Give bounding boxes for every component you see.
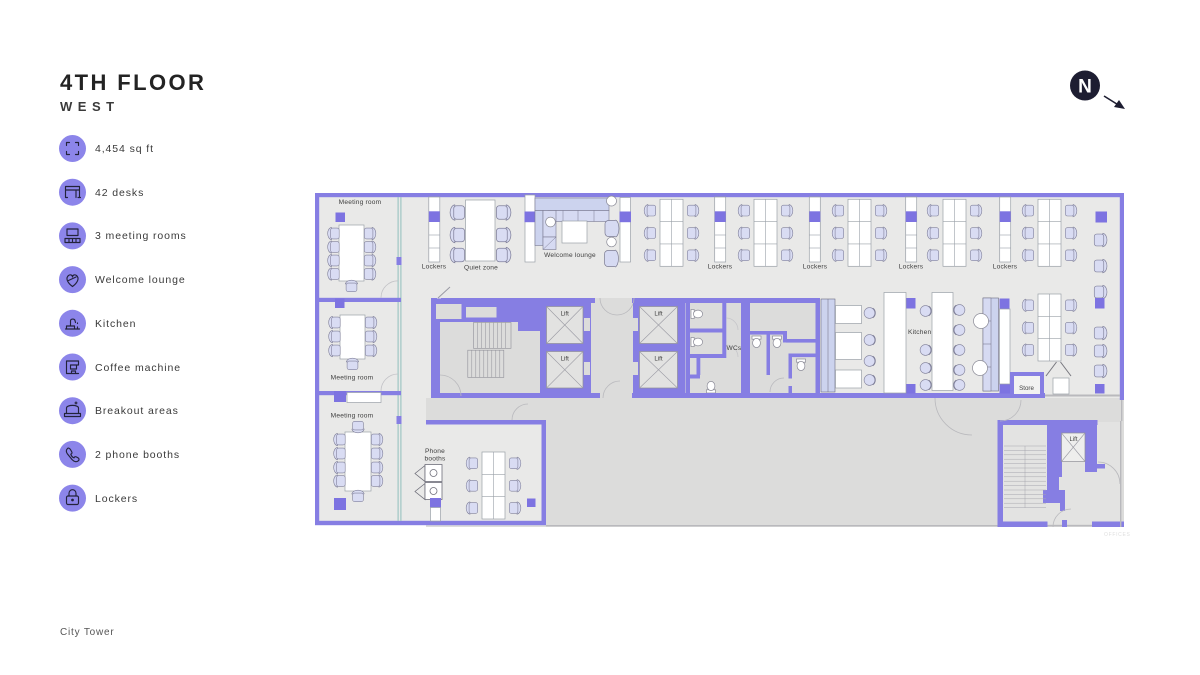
svg-text:Lockers: Lockers [422, 264, 447, 271]
svg-text:Lockers: Lockers [708, 264, 733, 271]
svg-text:Welcome lounge: Welcome lounge [544, 252, 596, 259]
svg-text:Lockers: Lockers [993, 264, 1018, 271]
svg-text:Quiet zone: Quiet zone [464, 265, 498, 272]
svg-text:Lift: Lift [561, 356, 570, 363]
svg-text:Store: Store [1019, 385, 1034, 392]
svg-text:Lift: Lift [1069, 437, 1077, 443]
svg-text:Lift: Lift [654, 356, 663, 363]
svg-text:Lockers: Lockers [803, 264, 828, 271]
svg-text:OFFICES: OFFICES [1104, 532, 1131, 538]
svg-text:Kitchen: Kitchen [908, 329, 932, 336]
svg-text:Lift: Lift [561, 311, 570, 318]
svg-text:Phonebooths: Phonebooths [425, 448, 447, 463]
svg-text:WCs: WCs [727, 345, 742, 352]
svg-text:Meeting room: Meeting room [331, 375, 374, 382]
svg-text:Lockers: Lockers [899, 264, 924, 271]
svg-text:Lift: Lift [654, 311, 663, 318]
svg-text:Meeting room: Meeting room [331, 413, 374, 420]
svg-text:Meeting room: Meeting room [339, 199, 382, 206]
